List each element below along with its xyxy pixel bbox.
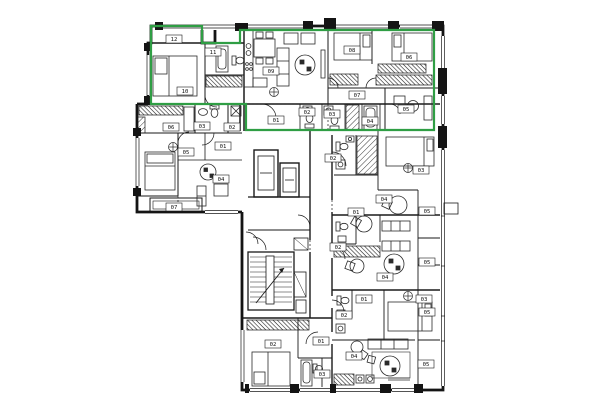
room-label: 01 [268,116,284,124]
room-label: 04 [346,352,362,360]
room-label: 10 [177,87,193,95]
svg-text:09: 09 [268,69,275,75]
room-label: 11 [205,48,221,56]
svg-text:04: 04 [381,197,388,203]
svg-text:05: 05 [424,209,431,215]
svg-text:07: 07 [171,205,178,211]
svg-text:04: 04 [351,354,358,360]
room-label: 04 [377,273,393,281]
room-label: 05 [419,308,435,316]
room-label: 03 [413,166,429,174]
room-label: 04 [376,195,392,203]
room-label: 06 [163,123,179,131]
svg-text:02: 02 [229,125,236,131]
room-label: 05 [178,148,194,156]
room-label: 12 [166,35,182,43]
svg-text:03: 03 [421,297,428,303]
svg-text:06: 06 [406,55,413,61]
svg-text:02: 02 [330,156,337,162]
room-label: 02 [336,311,352,319]
room-label: 01 [313,337,329,345]
room-label: 03 [314,370,330,378]
svg-text:02: 02 [341,313,348,319]
svg-text:01: 01 [220,144,227,150]
room-label: 05 [419,258,435,266]
floor-plan-canvas: 1210110908060705010203040603020105040702… [0,0,600,400]
svg-text:01: 01 [273,118,280,124]
svg-text:02: 02 [270,342,277,348]
svg-text:04: 04 [382,275,389,281]
svg-text:04: 04 [218,177,225,183]
svg-text:07: 07 [354,93,361,99]
room-label: 03 [416,295,432,303]
room-label: 01 [356,295,372,303]
svg-text:03: 03 [418,168,425,174]
room-label: 02 [265,340,281,348]
room-label: 05 [418,360,434,368]
svg-text:01: 01 [318,339,325,345]
room-label: 09 [263,67,279,75]
svg-text:08: 08 [349,48,356,54]
svg-text:10: 10 [182,89,189,95]
svg-text:12: 12 [171,37,178,43]
room-label: 02 [330,243,346,251]
room-label: 01 [215,142,231,150]
floor-plan-page: 1210110908060705010203040603020105040702… [0,0,600,400]
svg-text:03: 03 [199,124,206,130]
room-label: 03 [324,110,340,118]
svg-text:02: 02 [335,245,342,251]
room-label: 03 [194,122,210,130]
svg-text:02: 02 [304,110,311,116]
svg-text:05: 05 [424,260,431,266]
svg-text:01: 01 [361,297,368,303]
room-label: 07 [166,203,182,211]
room-label: 05 [398,105,414,113]
room-label: 08 [344,46,360,54]
svg-text:05: 05 [183,150,190,156]
svg-text:06: 06 [168,125,175,131]
room-label: 02 [299,108,315,116]
section-marker [444,203,458,214]
svg-text:01: 01 [353,210,360,216]
svg-text:04: 04 [367,119,374,125]
room-label: 07 [349,91,365,99]
room-label: 06 [401,53,417,61]
svg-text:03: 03 [319,372,326,378]
room-label: 02 [224,123,240,131]
room-label: 05 [419,207,435,215]
svg-text:11: 11 [210,50,217,56]
room-label: 04 [362,117,378,125]
room-label: 01 [348,208,364,216]
room-label: 02 [325,154,341,162]
svg-text:05: 05 [424,310,431,316]
room-label: 04 [213,175,229,183]
svg-text:05: 05 [423,362,430,368]
svg-text:05: 05 [403,107,410,113]
svg-text:03: 03 [329,112,336,118]
